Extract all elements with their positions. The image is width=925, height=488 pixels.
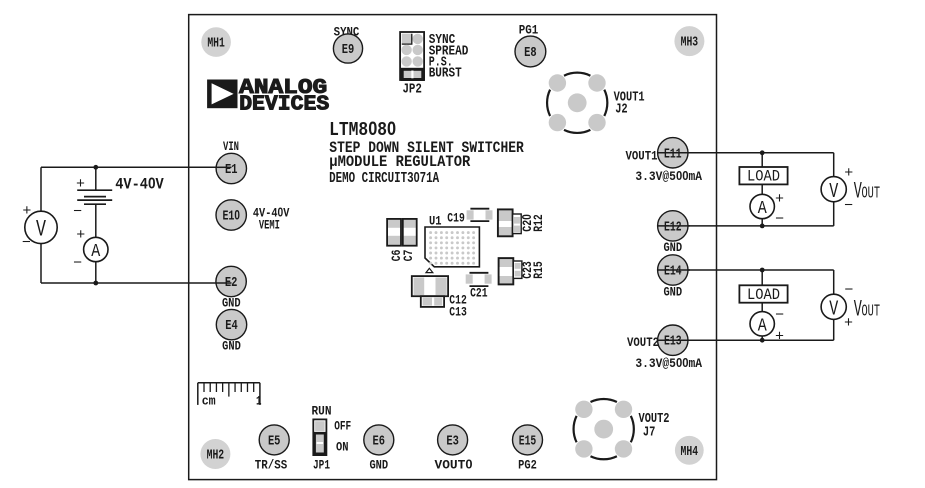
svg-text:E6: E6 — [373, 433, 386, 449]
svg-text:E4: E4 — [225, 318, 238, 334]
svg-text:RUN: RUN — [312, 404, 332, 419]
svg-text:MH1: MH1 — [207, 36, 225, 52]
svg-text:PG1: PG1 — [519, 22, 539, 37]
svg-text:E11: E11 — [664, 146, 682, 162]
svg-text:E14: E14 — [664, 264, 682, 280]
svg-text:3.3V@500mA: 3.3V@500mA — [635, 355, 702, 371]
svg-text:LTM8080: LTM8080 — [329, 118, 396, 141]
svg-text:GND: GND — [369, 457, 388, 472]
svg-text:LOAD: LOAD — [747, 168, 780, 186]
svg-text:U1: U1 — [429, 213, 442, 228]
svg-text:−: − — [73, 255, 82, 272]
svg-text:LOAD: LOAD — [747, 286, 780, 304]
svg-text:DEMO CIRCUIT3071A: DEMO CIRCUIT3071A — [329, 169, 439, 187]
svg-text:R12: R12 — [531, 214, 546, 232]
svg-text:−: − — [775, 307, 784, 324]
svg-text:V: V — [829, 181, 838, 204]
svg-text:TR/SS: TR/SS — [255, 457, 288, 472]
svg-text:cm: cm — [202, 394, 216, 409]
svg-text:C13: C13 — [449, 305, 467, 320]
svg-text:E12: E12 — [664, 219, 682, 235]
svg-text:OFF: OFF — [334, 419, 351, 434]
svg-text:VIN: VIN — [223, 139, 239, 154]
svg-text:DEVICES: DEVICES — [239, 92, 329, 116]
svg-text:J2: J2 — [615, 102, 628, 118]
svg-text:−: − — [22, 235, 31, 252]
svg-text:MH2: MH2 — [207, 448, 225, 464]
svg-text:VOUT0: VOUT0 — [435, 456, 473, 472]
svg-text:ON: ON — [336, 440, 349, 455]
svg-text:A: A — [758, 199, 767, 219]
svg-text:E8: E8 — [524, 45, 537, 61]
svg-text:V: V — [829, 298, 838, 321]
svg-text:3.3V@500mA: 3.3V@500mA — [635, 168, 702, 184]
svg-text:1: 1 — [256, 394, 262, 409]
svg-text:A: A — [91, 242, 100, 262]
svg-text:VOUT2: VOUT2 — [627, 335, 659, 350]
svg-text:BURST: BURST — [429, 66, 462, 82]
svg-text:E3: E3 — [446, 433, 459, 449]
svg-text:VOUT1: VOUT1 — [626, 148, 658, 163]
svg-text:E5: E5 — [268, 433, 281, 449]
svg-text:−: − — [775, 211, 784, 228]
svg-text:+: + — [844, 315, 853, 332]
svg-text:MH3: MH3 — [681, 35, 699, 51]
svg-text:E1: E1 — [225, 162, 238, 178]
svg-text:−: − — [73, 204, 82, 221]
svg-text:+: + — [775, 329, 784, 346]
svg-text:C19: C19 — [447, 210, 465, 225]
svg-text:+: + — [76, 176, 85, 193]
svg-text:E13: E13 — [664, 334, 682, 350]
svg-text:OUT: OUT — [862, 301, 881, 320]
svg-text:PG2: PG2 — [518, 457, 537, 472]
svg-text:A: A — [758, 316, 767, 336]
svg-text:GND: GND — [222, 295, 241, 310]
svg-text:GND: GND — [663, 240, 682, 255]
svg-text:OUT: OUT — [862, 184, 881, 203]
svg-text:−: − — [844, 282, 853, 299]
svg-text:MH4: MH4 — [681, 444, 699, 460]
svg-text:4V-40V: 4V-40V — [115, 175, 164, 193]
svg-text:VEMI: VEMI — [259, 217, 280, 232]
svg-text:E9: E9 — [342, 42, 355, 58]
svg-text:+: + — [22, 203, 31, 220]
svg-text:GND: GND — [222, 339, 241, 354]
svg-text:R15: R15 — [531, 261, 546, 279]
svg-text:C21: C21 — [470, 285, 488, 300]
svg-text:−: − — [844, 198, 853, 215]
svg-text:E15: E15 — [519, 433, 537, 449]
svg-text:+: + — [775, 191, 784, 208]
svg-text:C7: C7 — [401, 250, 416, 262]
svg-text:+: + — [76, 227, 85, 244]
svg-text:V: V — [36, 217, 46, 243]
svg-text:+: + — [844, 165, 853, 182]
svg-text:JP2: JP2 — [402, 82, 422, 98]
svg-text:GND: GND — [663, 284, 682, 299]
svg-text:J7: J7 — [643, 424, 656, 440]
svg-text:JP1: JP1 — [313, 457, 330, 472]
svg-text:μMODULE REGULATOR: μMODULE REGULATOR — [329, 153, 470, 171]
svg-text:E10: E10 — [222, 207, 240, 225]
